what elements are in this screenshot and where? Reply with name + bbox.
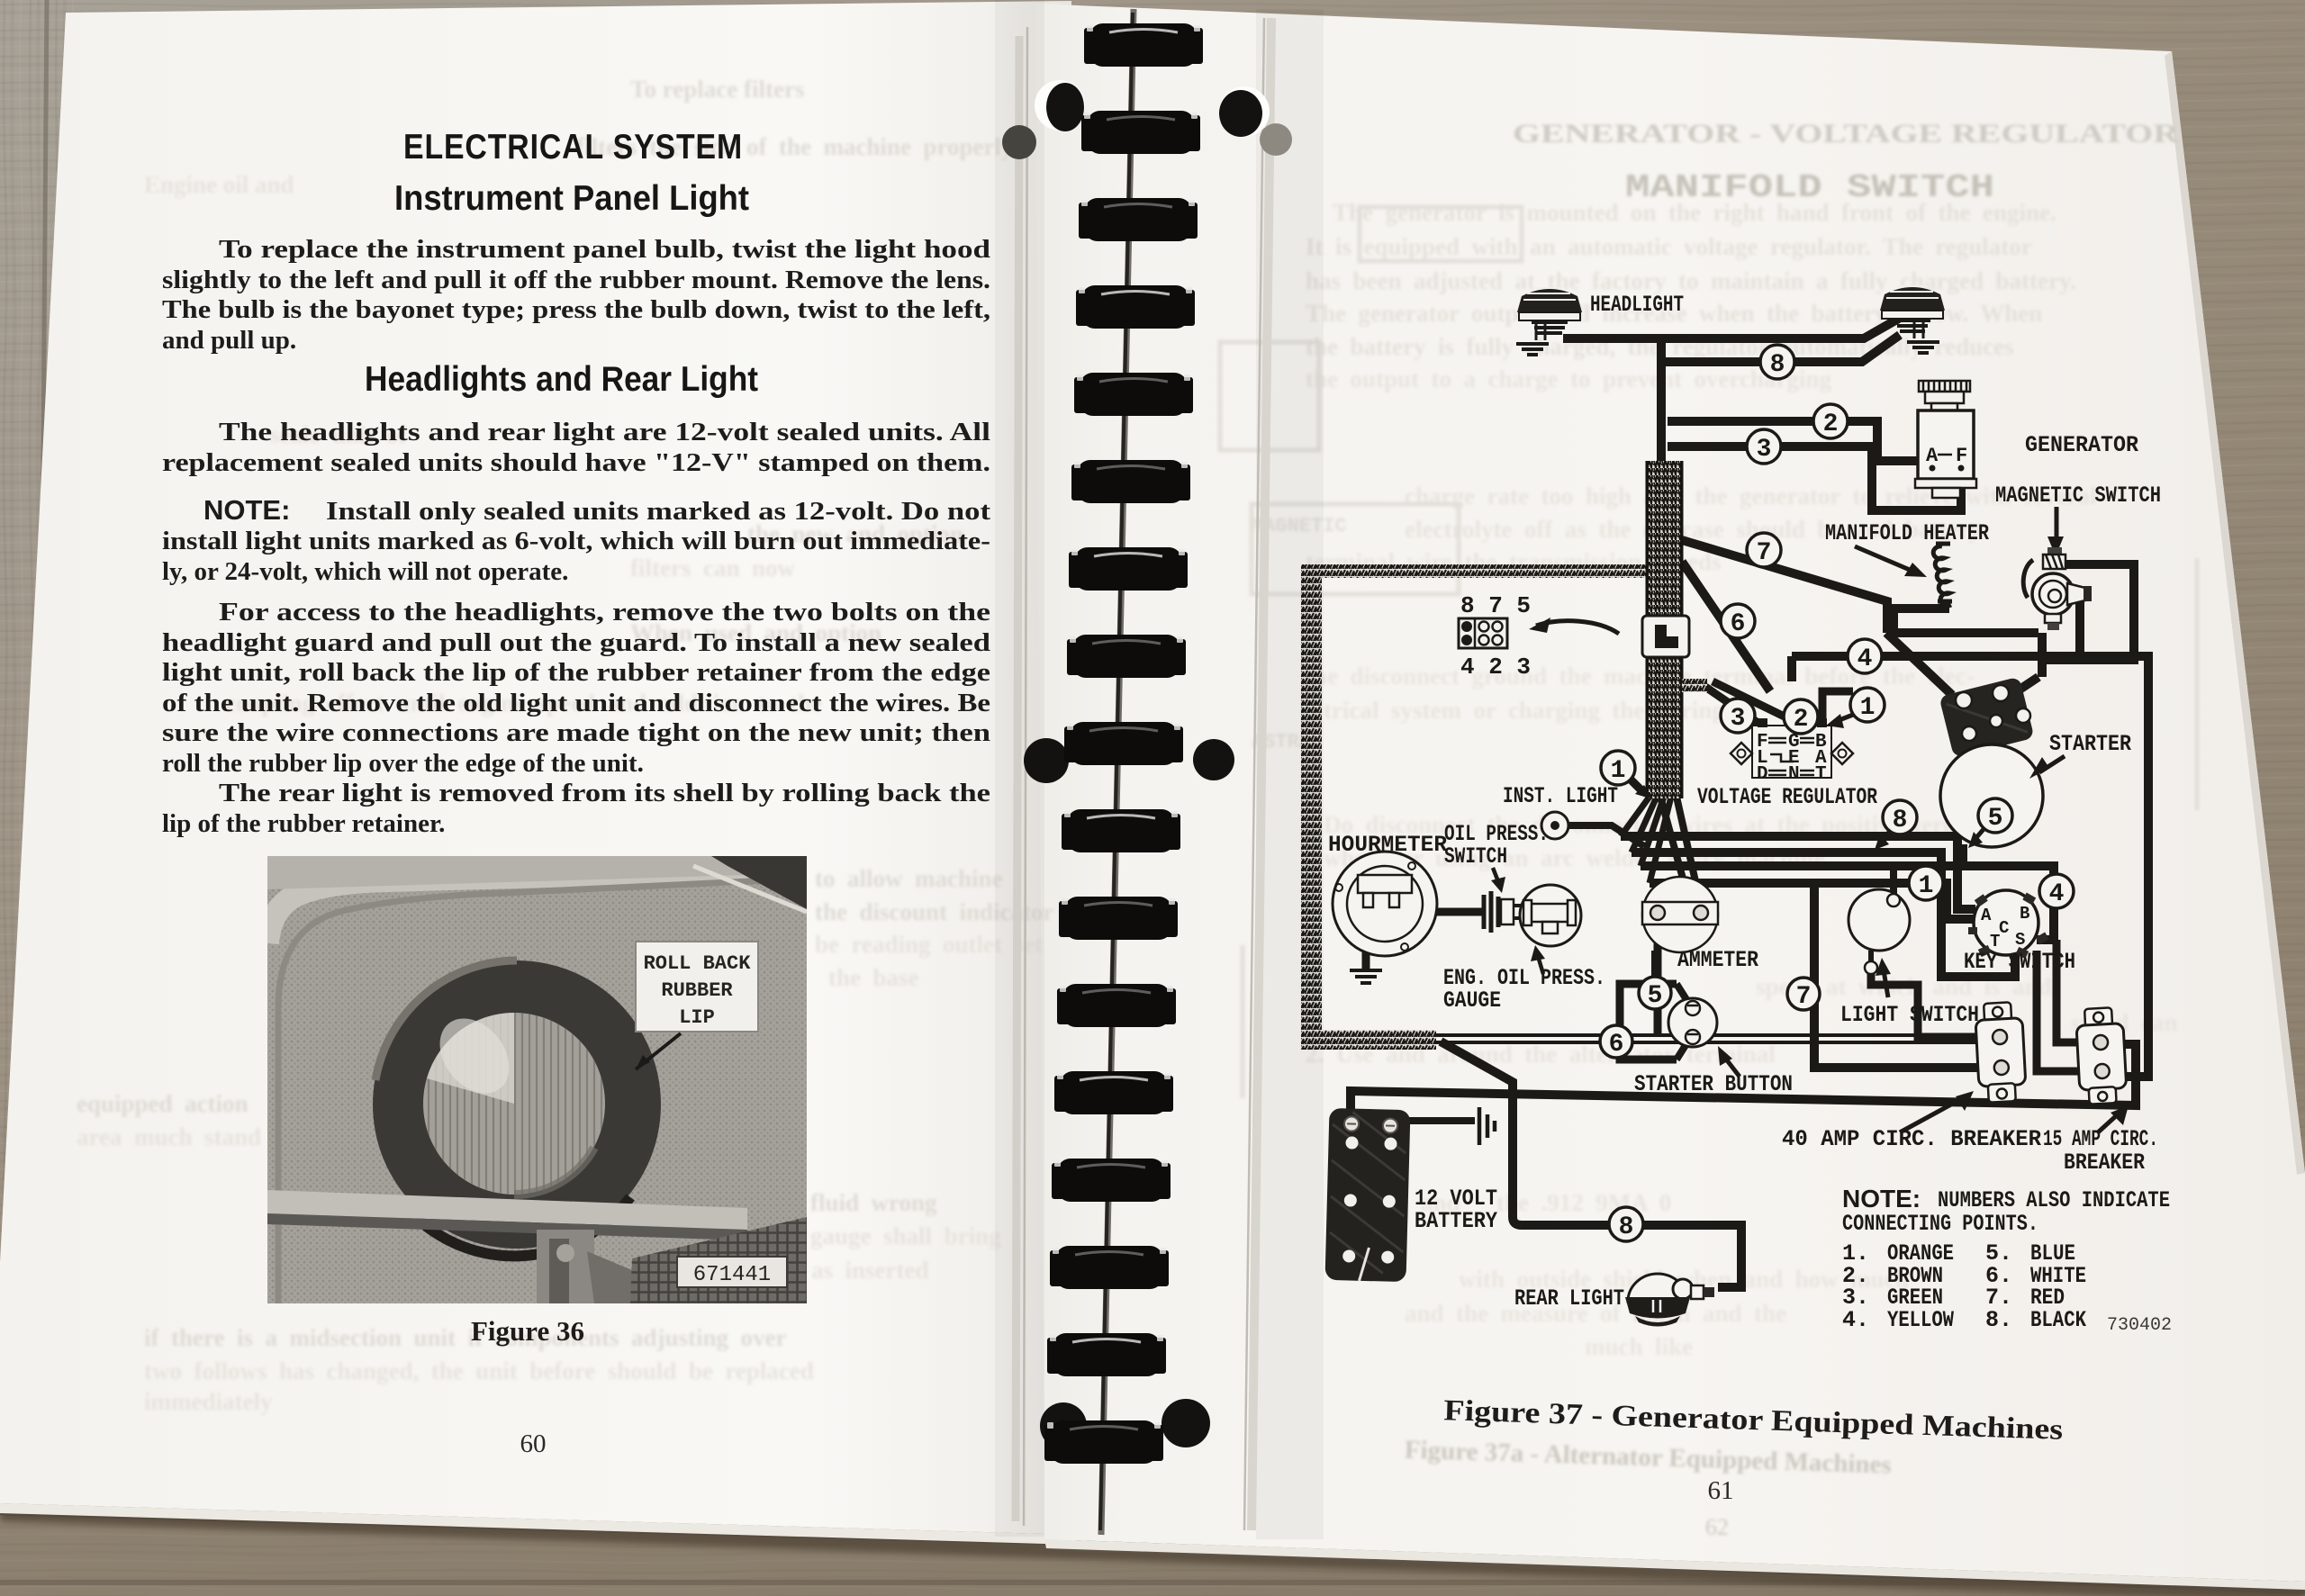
svg-text:MAGNETIC SWITCH: MAGNETIC SWITCH: [1995, 482, 2161, 509]
svg-text:Instrument Panel Light: Instrument Panel Light: [394, 179, 749, 218]
svg-text:4 2 3: 4 2 3: [1460, 654, 1531, 681]
svg-text:It is equipped with an au: It is equipped with an automatic voltage…: [1306, 233, 2032, 260]
svg-text:BLACK: BLACK: [2030, 1307, 2086, 1333]
svg-text:HEADLIGHT: HEADLIGHT: [1590, 292, 1684, 318]
svg-text:REAR LIGHT: REAR LIGHT: [1514, 1285, 1624, 1312]
svg-text:4.: 4.: [1842, 1307, 1869, 1333]
svg-text:7: 7: [1796, 983, 1812, 1011]
svg-text:N: N: [1788, 764, 1800, 785]
svg-text:62: 62: [1705, 1514, 1729, 1540]
svg-text:immediately: immediately: [144, 1388, 273, 1415]
svg-text:For access to the headlights,: For access to the headlights, remove the…: [219, 598, 990, 627]
svg-text:F: F: [1956, 445, 1967, 467]
svg-text:5: 5: [1988, 805, 2003, 833]
svg-text:6: 6: [1609, 1031, 1624, 1059]
svg-text:CONNECTING POINTS.: CONNECTING POINTS.: [1842, 1211, 2038, 1237]
svg-text:8 7 5: 8 7 5: [1460, 592, 1531, 619]
svg-text:headlight guard and pull out t: headlight guard and pull out the guard. …: [162, 628, 990, 657]
svg-text:ROLL BACK: ROLL BACK: [644, 952, 752, 975]
svg-text:slightly to the left and pull: slightly to the left and pull it off the…: [162, 266, 990, 294]
svg-text:and pull up.: and pull up.: [162, 326, 296, 355]
svg-text:Install only sealed units mark: Install only sealed units marked as 12-v…: [326, 497, 990, 526]
svg-text:INST. LIGHT: INST. LIGHT: [1503, 783, 1618, 809]
svg-text:730402: 730402: [2107, 1315, 2172, 1336]
svg-text:has been adjusted at the: has been adjusted at the factory to main…: [1306, 267, 2076, 294]
svg-text:STARTER: STARTER: [2049, 731, 2131, 757]
svg-text:C: C: [1999, 918, 2009, 938]
svg-text:KEY SWITCH: KEY SWITCH: [1964, 949, 2075, 975]
svg-text:2: 2: [1794, 706, 1809, 734]
svg-text:ELECTRICAL SYSTEM: ELECTRICAL SYSTEM: [403, 128, 743, 167]
svg-text:equipped action: equipped action: [77, 1090, 249, 1117]
svg-text:NOTE:: NOTE:: [203, 494, 290, 526]
svg-text:light unit, roll back the lip: light unit, roll back the lip of the rub…: [162, 658, 990, 687]
svg-text:8: 8: [1893, 807, 1908, 834]
svg-text:LIGHT SWITCH: LIGHT SWITCH: [1840, 1002, 1979, 1028]
svg-text:GENERATOR: GENERATOR: [2025, 432, 2138, 458]
svg-text:Headlights and Rear Light: Headlights and Rear Light: [365, 360, 758, 399]
svg-text:671441: 671441: [693, 1263, 771, 1287]
svg-text:1: 1: [1860, 694, 1876, 722]
svg-text:GENERATOR - VOLTAGE REGULATOR: GENERATOR - VOLTAGE REGULATOR: [1513, 119, 2179, 149]
svg-text:To replace the instrument pane: To replace the instrument panel bulb, tw…: [219, 235, 990, 264]
svg-text:fluid wrong: fluid wrong: [810, 1189, 937, 1216]
svg-text:1: 1: [1611, 757, 1626, 785]
svg-text:The rear light is removed from: The rear light is removed from its shell…: [219, 779, 990, 807]
svg-text:5: 5: [1648, 982, 1663, 1010]
svg-text:RUBBER: RUBBER: [661, 979, 733, 1002]
svg-text:VOLTAGE REGULATOR: VOLTAGE REGULATOR: [1697, 784, 1877, 810]
svg-text:LIP: LIP: [679, 1006, 715, 1029]
svg-text:B: B: [2020, 904, 2029, 924]
svg-text:GAUGE: GAUGE: [1443, 987, 1501, 1014]
svg-text:3: 3: [1731, 705, 1746, 733]
svg-text:40 AMP CIRC. BREAKER: 40 AMP CIRC. BREAKER: [1782, 1126, 2041, 1152]
svg-text:lip of the rubber retainer.: lip of the rubber retainer.: [162, 809, 445, 838]
svg-text:4: 4: [1858, 645, 1873, 673]
svg-text:4: 4: [2049, 880, 2065, 908]
svg-text:NUMBERS ALSO INDICATE: NUMBERS ALSO INDICATE: [1938, 1187, 2170, 1213]
svg-text:of the unit. Remove the old li: of the unit. Remove the old light unit a…: [162, 689, 990, 717]
svg-text:ly, or 24-volt, which will not: ly, or 24-volt, which will not operate.: [162, 557, 568, 586]
svg-text:A: A: [1981, 906, 1992, 925]
svg-text:STARTER BUTTON: STARTER BUTTON: [1634, 1071, 1793, 1097]
svg-text:gauge shall bring: gauge shall bring: [810, 1222, 1001, 1249]
svg-text:1: 1: [1919, 872, 1934, 900]
svg-text:T: T: [1815, 764, 1827, 785]
svg-text:sure the wire connections are: sure the wire connections are made tight…: [162, 718, 990, 747]
svg-text:NOTE:: NOTE:: [1842, 1185, 1921, 1213]
svg-text:install light units marked as: install light units marked as 6-volt, wh…: [162, 527, 990, 555]
svg-text:to allow machine: to allow machine: [815, 865, 1003, 892]
svg-text:Figure 36: Figure 36: [471, 1315, 584, 1347]
svg-text:area much stand: area much stand: [77, 1123, 261, 1150]
svg-text:charge rate too high and: charge rate too high and the generator t…: [1405, 482, 2097, 509]
svg-text:S: S: [2015, 930, 2025, 950]
svg-text:the output to a charge to: the output to a charge to prevent overch…: [1306, 365, 1831, 392]
svg-text:The generator is mounted o: The generator is mounted on the right ha…: [1333, 199, 2056, 226]
svg-text:YELLOW: YELLOW: [1887, 1307, 1954, 1333]
svg-text:Engine oil and: Engine oil and: [144, 171, 294, 198]
svg-text:To replace filters: To replace filters: [630, 76, 804, 103]
svg-text:roll the rubber lip over the e: roll the rubber lip over the edge of the…: [162, 749, 644, 778]
svg-text:60: 60: [520, 1429, 547, 1458]
svg-text:8.: 8.: [1985, 1307, 2012, 1333]
svg-text:replacement sealed units shoul: replacement sealed units should have "12…: [162, 448, 990, 477]
svg-text:2: 2: [1823, 410, 1839, 438]
svg-text:8: 8: [1770, 351, 1785, 379]
svg-text:8: 8: [1619, 1213, 1634, 1241]
svg-text:D: D: [1757, 764, 1768, 785]
svg-text:3: 3: [1757, 436, 1772, 464]
svg-text:BREAKER: BREAKER: [2064, 1150, 2145, 1176]
svg-text:The headlights and rear light: The headlights and rear light are 12-vol…: [219, 418, 990, 446]
svg-text:two follows has changed, t: two follows has changed, the unit before…: [144, 1357, 814, 1384]
svg-text:61: 61: [1708, 1476, 1734, 1505]
svg-text:SWITCH: SWITCH: [1444, 843, 1507, 870]
svg-text:The bulb is the bayonet type;: The bulb is the bayonet type; press the …: [162, 295, 990, 324]
svg-text:much like: much like: [1585, 1333, 1693, 1360]
svg-text:filters can now: filters can now: [630, 555, 795, 582]
svg-text:MANIFOLD HEATER: MANIFOLD HEATER: [1825, 520, 1989, 546]
svg-text:the base: the base: [828, 964, 919, 991]
svg-text:7: 7: [1757, 539, 1772, 567]
svg-text:6: 6: [1731, 610, 1746, 638]
svg-text:if there is a midsection: if there is a midsection unit if compone…: [144, 1324, 787, 1351]
svg-text:A: A: [1926, 445, 1939, 467]
svg-text:BATTERY: BATTERY: [1415, 1208, 1497, 1234]
svg-text:AMMETER: AMMETER: [1677, 947, 1758, 973]
